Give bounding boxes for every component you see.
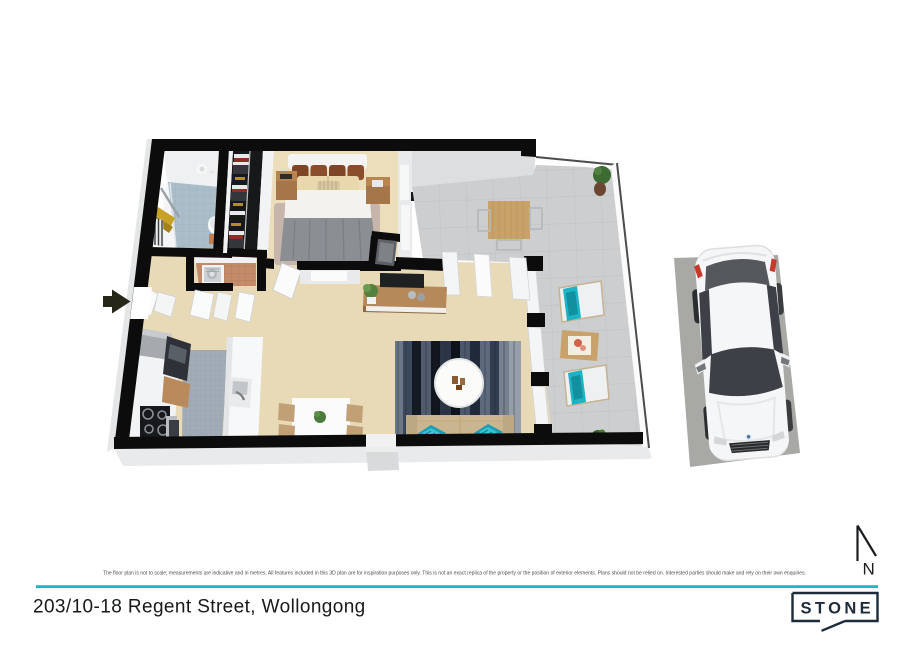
svg-text:STONE: STONE: [801, 600, 875, 618]
svg-text:203/10-18 Regent Street, Wollo: 203/10-18 Regent Street, Wollongong: [33, 597, 366, 618]
svg-text:N: N: [863, 560, 875, 579]
svg-text:The floor plan is not to scale: The floor plan is not to scale; measurem…: [103, 571, 806, 577]
